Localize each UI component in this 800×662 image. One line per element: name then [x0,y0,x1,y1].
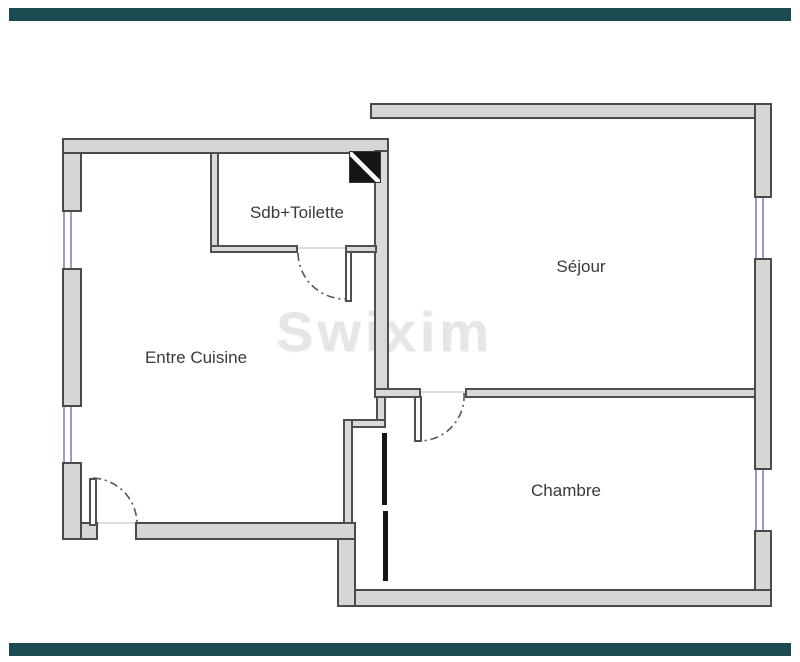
wall-top-left-section [62,138,389,154]
window-left-2 [63,405,72,464]
wall-strip-left [343,419,353,524]
room-label-entre-cuisine: Entre Cuisine [106,348,286,368]
wall-step-left [337,538,356,607]
threshold-chambre [421,391,465,393]
room-label-chambre: Chambre [476,481,656,501]
door-arc-sdb [298,253,345,299]
threshold-sdb [298,247,345,249]
floorplan-image: Swixim Sdb+Toilette Séjour Entre Cuisine [0,0,800,662]
room-label-sdb-toilette: Sdb+Toilette [219,203,375,223]
window-right-2 [755,468,764,532]
wall-left-middle [62,268,82,407]
door-arc-entrance [93,478,137,523]
door-leaf-sdb [345,251,352,302]
door-leaf-chambre [414,396,422,442]
wall-sdb-bottom-left [210,245,298,253]
window-left-1 [63,210,72,270]
window-right-1 [755,196,764,260]
wall-sdb-left [210,152,219,252]
wall-strip-black-lower [383,511,388,581]
wall-sejour-top [370,103,772,119]
shaft-symbol-icon [349,151,381,183]
brand-bar-top [9,8,791,21]
wall-sejour-left [374,150,389,398]
room-label-sejour: Séjour [486,257,676,277]
wall-chambre-bottom [337,589,772,607]
wall-strip-black-upper [382,433,387,505]
door-arc-chambre [420,393,464,441]
door-leaf-entrance [89,478,97,526]
threshold-entrance [97,522,135,524]
wall-cuisine-bottom [135,522,356,540]
wall-right-middle [754,258,772,470]
wall-divider-right [465,388,756,398]
wall-left-lower [62,462,82,540]
brand-bar-bottom [9,643,791,656]
wall-right-upper [754,103,772,198]
